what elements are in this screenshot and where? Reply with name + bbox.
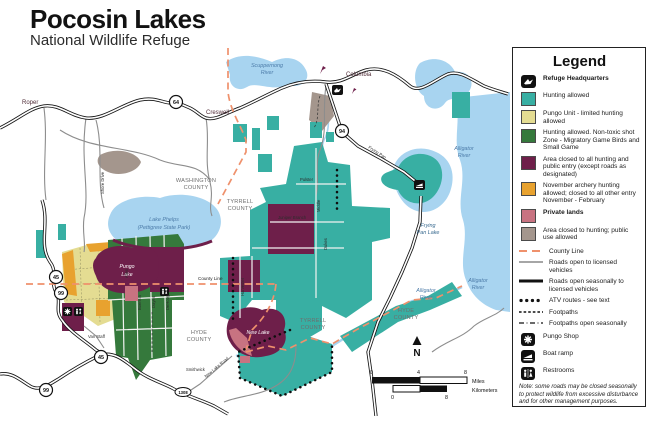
refuge-headquarters-icon [332,85,343,95]
kilometers-label: Kilometers [472,388,498,394]
miles-label: Miles [472,379,485,385]
svg-text:Smithwick: Smithwick [186,367,206,372]
closed-block-central [268,204,314,254]
svg-text:COUNTY: COUNTY [228,206,253,212]
legend-item-nontoxic-zone: Hunting allowed. Non-toxic shot Zone - M… [519,129,640,151]
svg-text:HYDE: HYDE [191,330,207,336]
legend-item-pungo-shop: Pungo Shop [519,333,640,346]
footpath-seasonal-symbol [519,320,543,326]
legend-item-atv: ATV routes - see text [519,297,640,304]
town-creswell: Creswell [206,110,229,116]
pungo-shop-icon [63,307,72,316]
svg-text:64: 64 [173,100,179,106]
svg-text:Frying: Frying [421,223,436,229]
svg-text:Boerma: Boerma [137,295,142,310]
svg-text:Lake Phelps: Lake Phelps [149,217,179,223]
route-99-shield: 99 [40,384,53,397]
svg-text:99: 99 [43,388,49,394]
svg-text:(Pettigrew State Park): (Pettigrew State Park) [138,225,191,231]
route-1308-shield: 1308 [175,388,191,397]
svg-text:Allen: Allen [124,268,129,278]
svg-text:Juniper Branch: Juniper Branch [278,215,307,220]
restrooms-icon [74,307,83,316]
svg-text:8: 8 [445,395,448,401]
legend-item-archery: November archery hunting allowed; closed… [519,182,640,204]
svg-text:4: 4 [417,370,420,376]
boat-ramp-icon [414,180,425,190]
svg-text:River: River [420,295,433,301]
route-94-shield: 94 [336,125,349,138]
svg-text:COUNTY: COUNTY [394,315,419,321]
svg-text:0: 0 [391,395,394,401]
legend-item-private-lands: Private lands [519,209,640,223]
road-open-symbol [519,259,543,265]
svg-text:COUNTY: COUNTY [301,325,326,331]
route-45-shield: 45 [50,271,63,284]
svg-text:River: River [458,153,471,159]
svg-text:1308: 1308 [178,390,188,395]
refuge-headquarters-icon [519,75,537,88]
title-block: Pocosin Lakes National Wildlife Refuge [30,6,206,50]
legend-heading: Legend [519,53,640,70]
svg-text:WASHINGTON: WASHINGTON [176,178,216,184]
svg-text:8: 8 [464,370,467,376]
legend-item-pungo-unit: Pungo Unit - limited hunting allowed [519,110,640,125]
svg-text:Shore Drive: Shore Drive [100,171,105,194]
svg-text:Van Staff: Van Staff [88,334,106,339]
legend-item-closed-hunting: Area closed to hunting; public use allow… [519,227,640,242]
road-seasonal-symbol [519,278,543,284]
svg-text:Alligator: Alligator [467,278,488,284]
legend-item-refuge-headquarters: Refuge Headquarters [519,75,640,88]
boat-ramp-icon [519,350,537,363]
columbia-flag-marker [320,66,326,74]
legend-item-county-line: County Line [519,248,640,255]
restrooms-icon [519,367,537,380]
county-line-label: County Line [198,276,223,281]
svg-text:Scuppernong: Scuppernong [251,63,283,69]
svg-text:DeHoog: DeHoog [165,294,170,310]
town-columbia: Columbia [346,72,372,78]
route-45-shield: 45 [95,351,108,364]
legend-item-roads-open: Roads open to licensed vehicles [519,259,640,274]
svg-text:94: 94 [339,129,345,135]
svg-text:99: 99 [58,291,64,297]
svg-text:TYRRELL: TYRRELL [300,318,327,324]
svg-text:River: River [261,70,274,76]
legend-note: Note: some roads may be closed seasonall… [519,384,640,405]
page-title: Pocosin Lakes [30,6,206,33]
svg-text:New Lake Road: New Lake Road [203,355,230,378]
pungo-shop-icon [519,333,537,346]
page-subtitle: National Wildlife Refuge [30,33,206,50]
svg-text:45: 45 [98,355,104,361]
svg-text:COUNTY: COUNTY [187,337,212,343]
svg-text:Harvester: Harvester [240,277,245,296]
legend-item-boat-ramp: Boat ramp [519,350,640,363]
svg-text:Dukes: Dukes [323,238,328,250]
svg-text:Middle: Middle [316,199,321,212]
svg-text:Pulster: Pulster [300,177,314,182]
svg-text:HYDE: HYDE [398,308,414,314]
svg-text:River: River [472,285,485,291]
svg-text:N: N [413,348,420,359]
north-arrow: N [413,336,422,359]
flag-marker [352,88,357,94]
legend-item-footpaths-seasonal: Footpaths open seasonally [519,320,640,327]
svg-text:COUNTY: COUNTY [184,185,209,191]
legend-item-closed-all: Area closed to all hunting and public en… [519,156,640,178]
svg-text:Alligator: Alligator [453,146,474,152]
scale-bar: 0 4 8 0 8 Miles Kilometers [370,370,498,401]
legend-panel: Legend Refuge Headquarters Hunting allow… [512,47,646,407]
svg-text:TYRRELL: TYRRELL [227,199,254,205]
atv-symbol [519,297,543,304]
legend-item-hunting-allowed: Hunting allowed [519,92,640,106]
town-roper: Roper [22,100,38,106]
svg-text:New Lake: New Lake [246,330,269,336]
route-64-shield: 64 [170,96,183,109]
svg-text:Alligator: Alligator [415,288,436,294]
route-99-shield: 99 [55,287,68,300]
svg-text:Pan Lake: Pan Lake [417,230,440,236]
footpath-symbol [519,309,543,315]
svg-text:45: 45 [53,275,59,281]
legend-item-roads-seasonal: Roads open seasonally to licensed vehicl… [519,278,640,293]
svg-text:Dayes: Dayes [151,296,156,308]
legend-item-restrooms: Restrooms [519,367,640,380]
county-line-symbol [519,248,543,254]
svg-text:0: 0 [370,370,373,376]
legend-item-footpaths: Footpaths [519,309,640,316]
